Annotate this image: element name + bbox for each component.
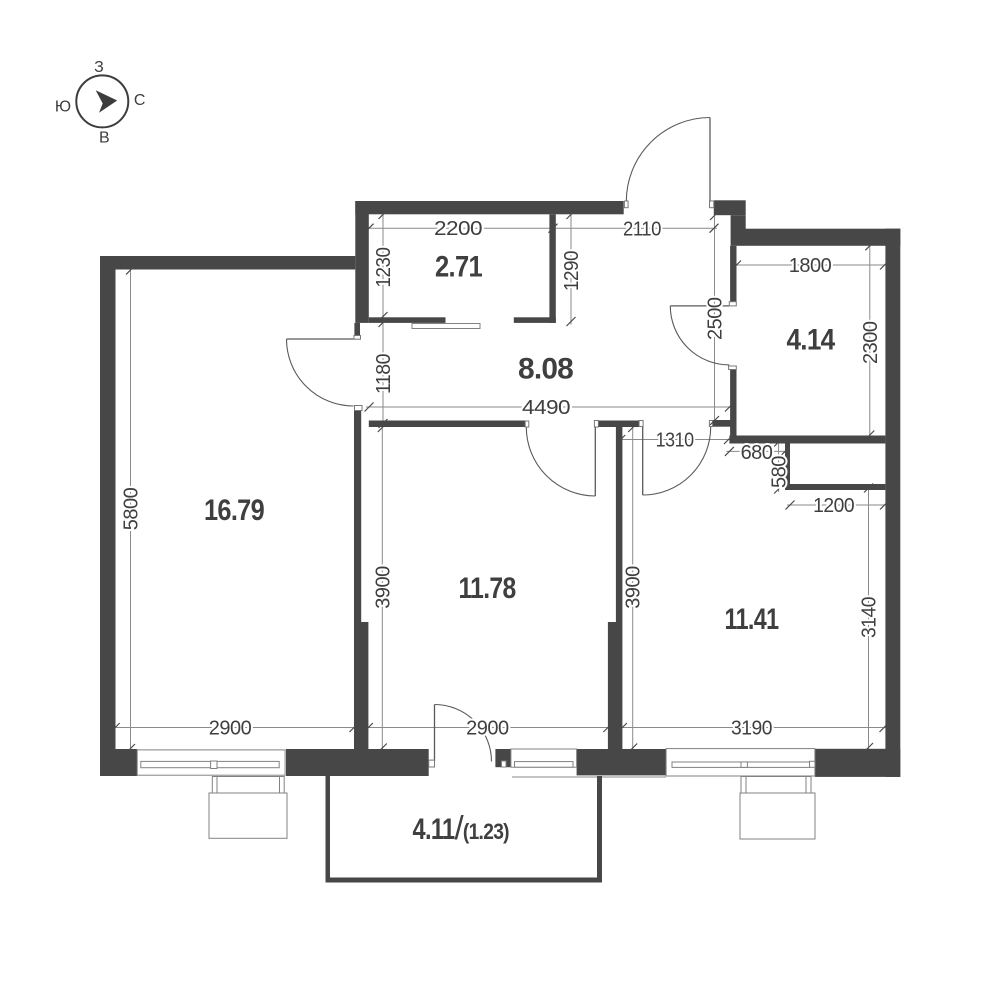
svg-text:З: З xyxy=(94,59,104,76)
svg-text:1200: 1200 xyxy=(813,495,854,517)
svg-text:580: 580 xyxy=(769,456,791,488)
svg-text:4490: 4490 xyxy=(522,397,570,419)
svg-text:2500: 2500 xyxy=(705,297,727,340)
svg-text:2.71: 2.71 xyxy=(435,251,482,284)
svg-text:2200: 2200 xyxy=(434,218,482,240)
svg-text:3140: 3140 xyxy=(859,597,881,638)
svg-text:4.14: 4.14 xyxy=(787,324,836,357)
svg-text:2300: 2300 xyxy=(860,321,882,364)
svg-text:11.78: 11.78 xyxy=(459,572,516,605)
svg-text:С: С xyxy=(134,92,146,109)
svg-text:5800: 5800 xyxy=(121,487,143,530)
svg-text:11.41: 11.41 xyxy=(725,603,779,636)
svg-text:2110: 2110 xyxy=(623,218,661,240)
svg-text:1310: 1310 xyxy=(656,430,694,452)
svg-text:1290: 1290 xyxy=(561,251,583,291)
svg-text:2900: 2900 xyxy=(209,718,252,740)
svg-text:1230: 1230 xyxy=(373,247,395,287)
svg-text:3190: 3190 xyxy=(731,718,772,740)
svg-text:1800: 1800 xyxy=(789,255,832,277)
svg-text:3900: 3900 xyxy=(372,566,394,609)
svg-text:16.79: 16.79 xyxy=(204,494,264,527)
svg-text:2900: 2900 xyxy=(466,718,509,740)
svg-text:В: В xyxy=(99,129,110,146)
svg-text:8.08: 8.08 xyxy=(518,353,573,386)
svg-text:1180: 1180 xyxy=(373,354,395,394)
svg-text:Ю: Ю xyxy=(55,99,71,116)
svg-text:3900: 3900 xyxy=(623,566,645,609)
